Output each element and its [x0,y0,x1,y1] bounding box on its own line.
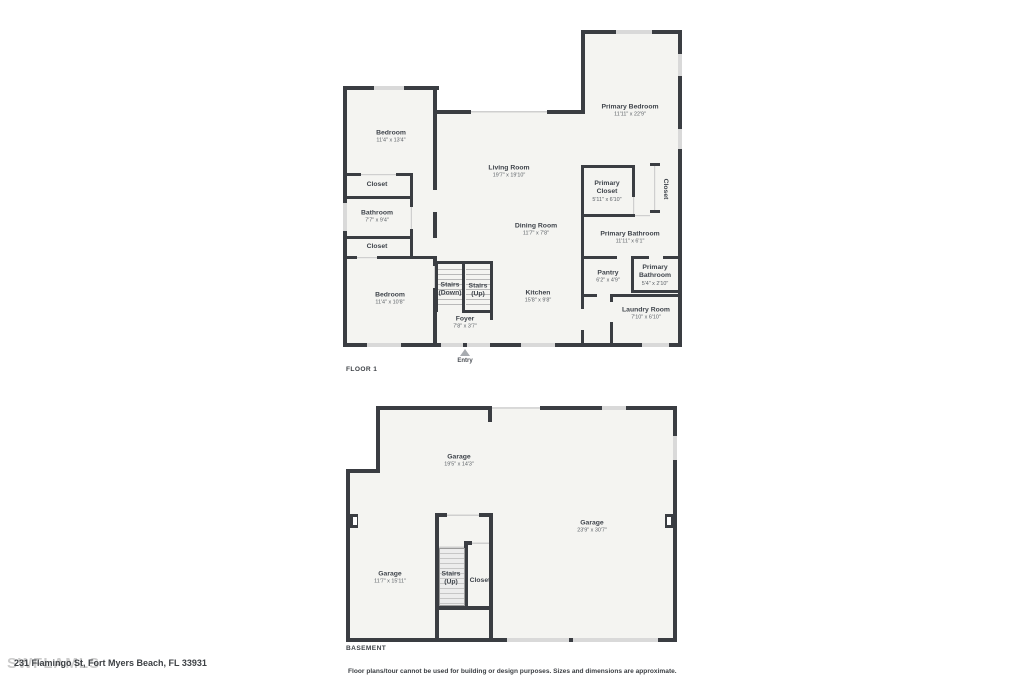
floor-plan-page: Bedroom 11'4" x 13'4" Closet Bathroom 7'… [0,0,1024,682]
basement-plan [346,406,677,642]
room-label-bedroom-1: Bedroom 11'4" x 13'4" [376,129,406,144]
property-address: 231 Flamingo St, Fort Myers Beach, FL 33… [14,658,207,668]
room-label-garage-top: Garage 19'5" x 14'3" [444,453,474,468]
room-label-foyer: Foyer 7'8" x 3'7" [453,315,477,330]
disclaimer-text: Floor plans/tour cannot be used for buil… [348,668,677,675]
room-label-pantry: Pantry 6'2" x 4'9" [596,269,620,284]
room-label-dining-room: Dining Room 11'7" x 7'8" [515,222,557,237]
room-label-kitchen: Kitchen 15'8" x 9'8" [525,289,552,304]
room-label-bathroom: Bathroom 7'7" x 9'4" [361,209,393,224]
room-label-primary-bathroom: Primary Bathroom 11'11" x 6'1" [600,230,659,245]
room-label-primary-closet: Primary Closet 5'11" x 6'10" [590,180,624,204]
room-label-laundry-room: Laundry Room 7'10" x 6'10" [622,306,670,321]
entry-arrow-icon [460,349,470,356]
room-label-stairs-up: Stairs (Up) [461,283,495,300]
basement-caption: BASEMENT [346,645,386,652]
floorplan-drawing [0,0,1024,682]
floor1-caption: FLOOR 1 [346,366,377,373]
room-label-garage-left: Garage 11'7" x 15'11" [374,570,406,585]
room-label-garage-right: Garage 23'9" x 30'7" [577,519,607,534]
entry-label: Entry [457,358,472,364]
room-label-living-room: Living Room 19'7" x 19'10" [488,164,529,179]
room-label-closet-3: Closet [661,179,669,200]
room-label-closet-1: Closet [367,181,388,189]
room-label-bedroom-2: Bedroom 11'4" x 10'8" [375,291,405,306]
room-label-closet-2: Closet [367,243,388,251]
room-label-primary-bedroom: Primary Bedroom 11'11" x 22'9" [601,103,658,118]
room-label-primary-bathroom-2: Primary Bathroom 5'4" x 2'10" [638,264,672,288]
room-label-basement-stairs-up: Stairs (Up) [434,571,468,588]
room-label-basement-closet: Closet [470,577,491,585]
